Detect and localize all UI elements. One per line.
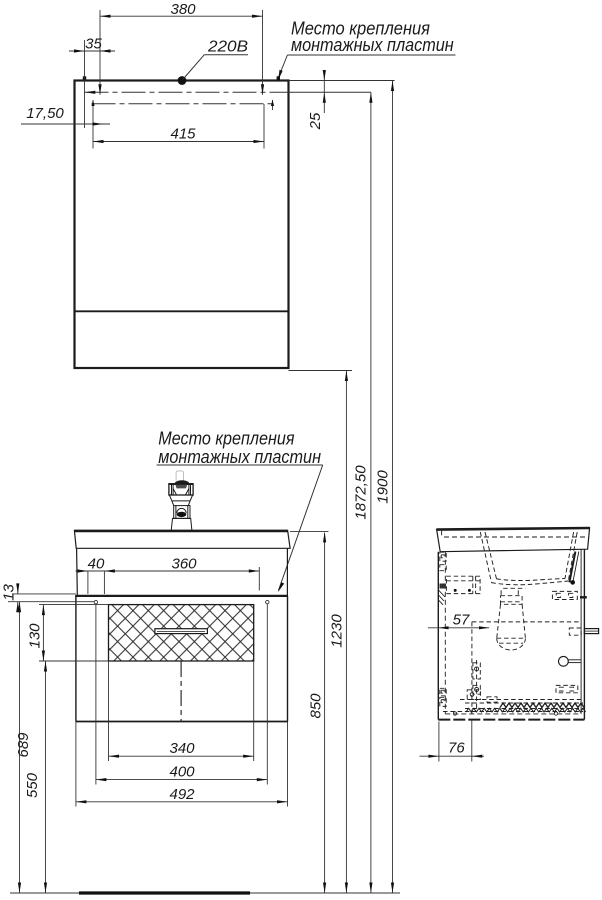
svg-text:340: 340 <box>169 740 195 757</box>
svg-text:130: 130 <box>27 623 44 649</box>
svg-text:1872,50: 1872,50 <box>353 465 370 520</box>
svg-text:Место крепления: Место крепления <box>158 429 295 449</box>
svg-text:492: 492 <box>169 786 195 803</box>
svg-text:монтажных пластин: монтажных пластин <box>291 35 454 55</box>
svg-text:57: 57 <box>453 612 470 629</box>
svg-text:850: 850 <box>308 693 325 719</box>
svg-text:76: 76 <box>448 740 465 757</box>
svg-text:380: 380 <box>170 1 196 18</box>
svg-text:1900: 1900 <box>375 470 392 504</box>
svg-text:монтажных пластин: монтажных пластин <box>158 447 321 467</box>
svg-text:550: 550 <box>24 772 41 798</box>
svg-text:360: 360 <box>171 556 197 573</box>
svg-text:35: 35 <box>85 36 102 53</box>
svg-text:400: 400 <box>169 764 195 781</box>
svg-text:1230: 1230 <box>329 614 346 648</box>
svg-text:13: 13 <box>1 584 18 601</box>
svg-text:17,50: 17,50 <box>26 105 64 122</box>
svg-text:25: 25 <box>307 112 324 130</box>
svg-text:40: 40 <box>88 556 105 573</box>
svg-text:689: 689 <box>15 732 32 758</box>
svg-text:220В: 220В <box>207 39 248 56</box>
svg-text:415: 415 <box>170 126 196 143</box>
